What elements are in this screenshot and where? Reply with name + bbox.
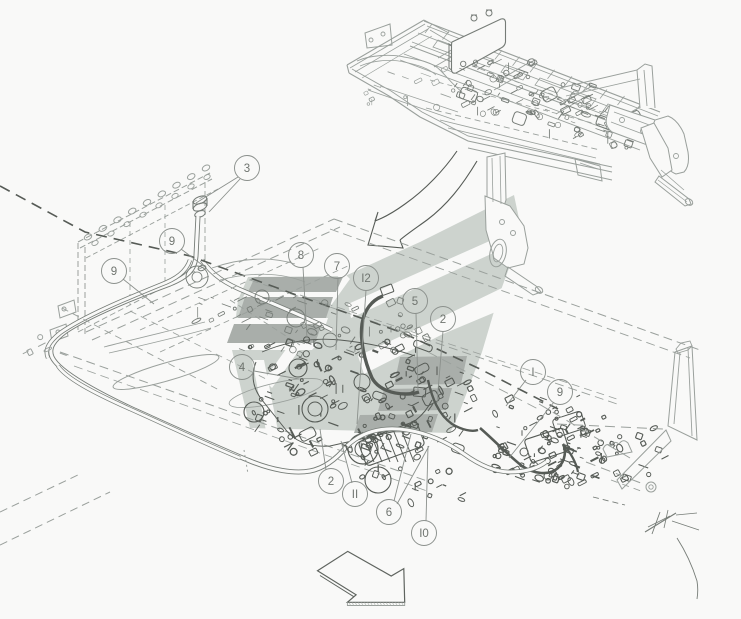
svg-text:I: I: [531, 367, 534, 379]
svg-text:8: 8: [298, 250, 304, 262]
svg-text:9: 9: [169, 236, 175, 248]
svg-text:I0: I0: [419, 528, 429, 540]
svg-text:2: 2: [440, 314, 446, 326]
svg-text:6: 6: [386, 507, 392, 519]
svg-text:I2: I2: [361, 273, 371, 285]
svg-text:5: 5: [412, 296, 418, 308]
svg-text:2: 2: [328, 476, 334, 488]
svg-text:3: 3: [244, 163, 250, 175]
svg-text:7: 7: [334, 261, 340, 273]
svg-text:4: 4: [239, 362, 246, 374]
svg-text:9: 9: [111, 266, 117, 278]
svg-text:9: 9: [557, 387, 563, 399]
svg-text:II: II: [352, 489, 358, 501]
